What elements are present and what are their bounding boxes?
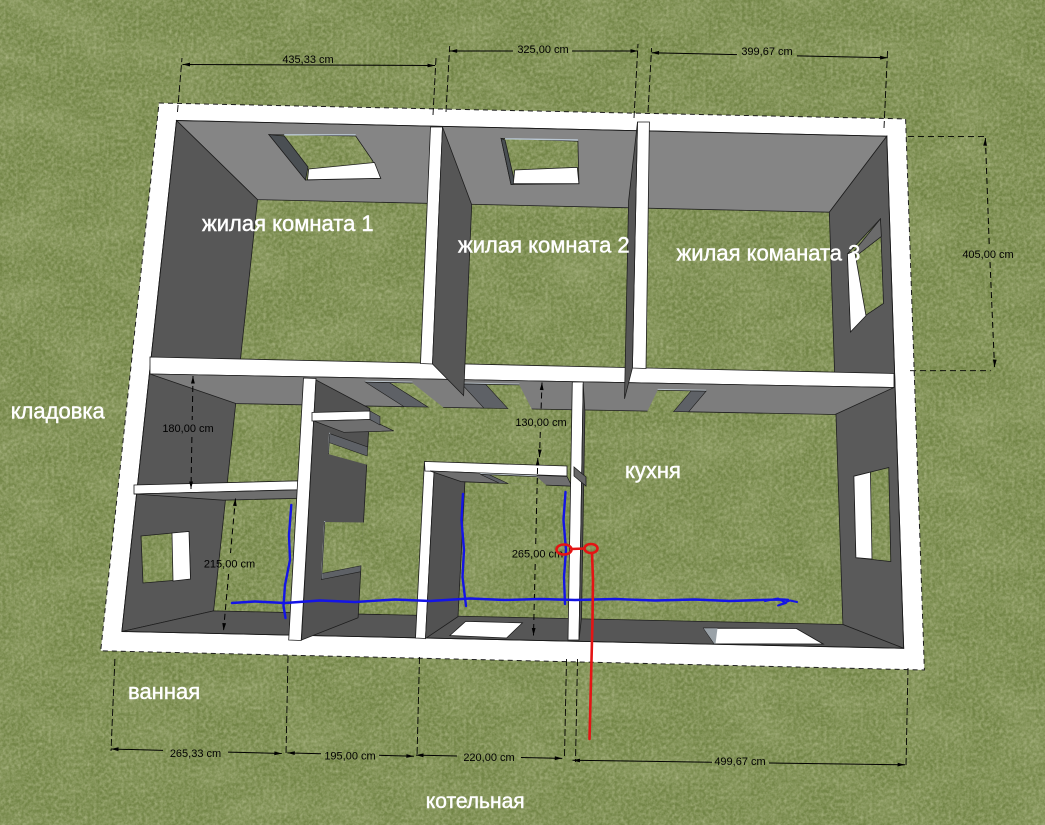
svg-text:195,00 cm: 195,00 cm xyxy=(324,751,375,763)
svg-text:ванная: ванная xyxy=(128,679,200,704)
svg-text:жилая комната 2: жилая комната 2 xyxy=(458,233,630,258)
svg-text:405,00 cm: 405,00 cm xyxy=(962,249,1013,261)
svg-text:котельная: котельная xyxy=(426,790,525,813)
svg-text:кладовка: кладовка xyxy=(11,399,106,424)
svg-text:325,00 cm: 325,00 cm xyxy=(517,44,568,56)
svg-text:жилая команата 3: жилая команата 3 xyxy=(677,241,861,266)
svg-text:жилая комната 1: жилая комната 1 xyxy=(202,211,374,236)
svg-text:435,33 cm: 435,33 cm xyxy=(282,54,333,66)
svg-text:265,33 cm: 265,33 cm xyxy=(170,748,221,760)
svg-text:215,00 cm: 215,00 cm xyxy=(204,559,255,571)
svg-text:499,67 cm: 499,67 cm xyxy=(714,756,765,768)
svg-text:399,67 cm: 399,67 cm xyxy=(741,46,792,58)
svg-text:130,00 cm: 130,00 cm xyxy=(515,417,566,429)
svg-text:кухня: кухня xyxy=(625,458,681,483)
svg-text:220,00 cm: 220,00 cm xyxy=(463,752,514,764)
svg-text:180,00 cm: 180,00 cm xyxy=(162,423,213,435)
